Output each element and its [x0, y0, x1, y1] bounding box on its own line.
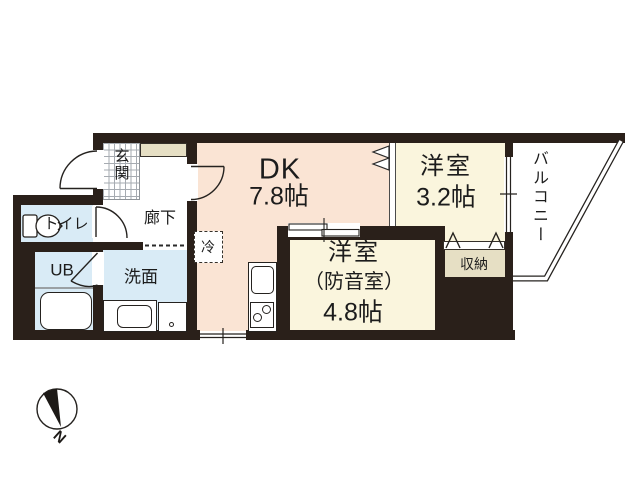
- label-soundproof-qualifier: （防音室）: [304, 272, 404, 292]
- south-window-opening: [200, 331, 246, 341]
- label-dk-name: DK: [259, 156, 301, 185]
- label-bedroom-name: 洋室: [420, 155, 472, 179]
- label-soundproof-name: 洋室: [328, 241, 380, 265]
- label-refrigerator: 冷: [201, 240, 215, 254]
- wall-east-upper: [505, 143, 513, 157]
- dk-door-opening: [186, 164, 198, 201]
- washer-drain: [169, 322, 174, 327]
- label-unit-bath: UB: [50, 262, 74, 279]
- stove-burner-front: [253, 313, 262, 322]
- label-dk-area: 7.8帖: [249, 185, 309, 210]
- label-washroom: 洗面: [124, 269, 158, 286]
- floor-hallway-lower: [103, 200, 140, 242]
- bath-door-opening: [92, 252, 104, 285]
- wall-southeast-block: [442, 277, 513, 340]
- label-storage: 収納: [460, 257, 488, 271]
- closet-door-band: [443, 241, 505, 250]
- label-toilet: トイレ: [43, 217, 88, 232]
- vanity-basin: [117, 305, 152, 328]
- kitchen-sink: [251, 266, 274, 294]
- label-bedroom-area: 3.2帖: [416, 186, 476, 211]
- front-door-opening: [92, 150, 104, 189]
- washer-pan: [158, 302, 187, 332]
- wall-top: [95, 133, 625, 143]
- wall-washroom-north: [103, 242, 143, 250]
- label-hallway: 廊下: [144, 211, 176, 227]
- floor-plan: N DK 7.8帖 洋室 3.2帖 洋室 （防音室） 4.8帖 収納 バルコニー…: [0, 0, 640, 480]
- balcony-window-opening: [504, 157, 514, 232]
- soundproof-window-opening: [288, 223, 360, 237]
- bathtub: [40, 292, 92, 330]
- sliding-partition: [389, 143, 396, 226]
- toilet-door-opening: [92, 206, 104, 238]
- label-soundproof-area: 4.8帖: [323, 301, 383, 326]
- wall-bath-west: [13, 250, 35, 340]
- wall-soundproof-west: [277, 226, 290, 333]
- label-entrance: 玄関: [114, 148, 129, 182]
- shoe-cabinet: [140, 143, 187, 157]
- washroom-sliding-door: [143, 241, 187, 250]
- wall-toilet-north: [13, 195, 103, 205]
- compass-icon: N: [37, 389, 77, 448]
- bath-divider-line: [35, 287, 93, 289]
- label-balcony: バルコニー: [530, 150, 546, 245]
- compass-n-label: N: [50, 427, 69, 447]
- floor-hallway-upper: [140, 143, 187, 242]
- stove-burner-rear: [262, 305, 271, 314]
